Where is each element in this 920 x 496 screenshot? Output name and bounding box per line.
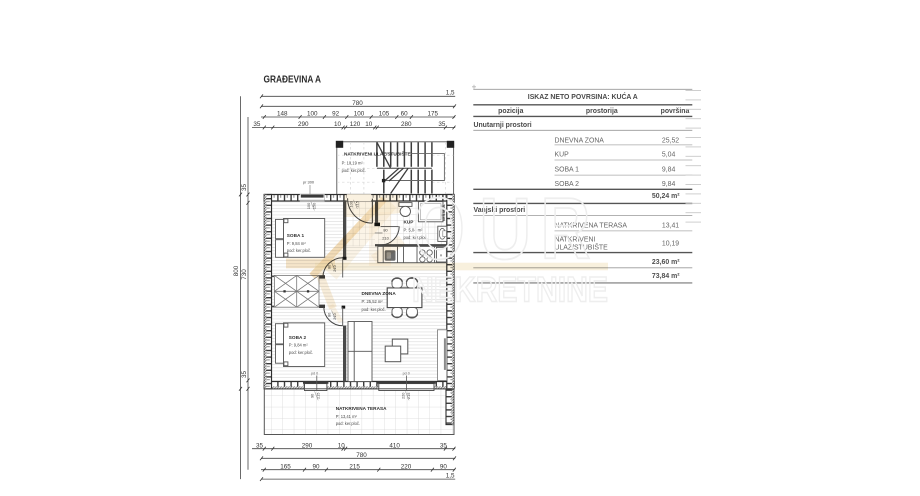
svg-text:pr 300: pr 300 bbox=[303, 180, 315, 185]
svg-text:NATKRIVENA TERASA: NATKRIVENA TERASA bbox=[336, 406, 387, 411]
svg-text:35: 35 bbox=[253, 121, 261, 128]
svg-text:10: 10 bbox=[365, 121, 373, 128]
svg-text:35: 35 bbox=[241, 184, 248, 192]
svg-text:90: 90 bbox=[312, 463, 320, 470]
svg-text:35: 35 bbox=[440, 442, 448, 449]
svg-text:780: 780 bbox=[352, 100, 363, 107]
svg-text:površina: površina bbox=[661, 108, 690, 115]
svg-text:165: 165 bbox=[280, 463, 291, 470]
svg-text:100: 100 bbox=[307, 111, 318, 118]
svg-text:10: 10 bbox=[338, 442, 346, 449]
svg-text:P: 9,84 m²: P: 9,84 m² bbox=[289, 343, 309, 348]
svg-text:5,04: 5,04 bbox=[662, 151, 676, 158]
svg-text:800: 800 bbox=[233, 265, 240, 276]
svg-text:pd 0: pd 0 bbox=[403, 372, 410, 376]
svg-text:SOBA 1: SOBA 1 bbox=[555, 166, 580, 173]
svg-text:290: 290 bbox=[302, 442, 313, 449]
svg-text:410: 410 bbox=[389, 442, 400, 449]
svg-text:P: 9,84 m²: P: 9,84 m² bbox=[287, 241, 307, 246]
svg-text:780: 780 bbox=[356, 452, 367, 459]
svg-text:120: 120 bbox=[350, 121, 361, 128]
svg-text:290: 290 bbox=[298, 121, 309, 128]
svg-text:730: 730 bbox=[241, 269, 248, 280]
svg-text:9,84: 9,84 bbox=[662, 166, 676, 173]
svg-text:O: O bbox=[413, 181, 465, 278]
svg-text:175: 175 bbox=[427, 111, 438, 118]
svg-text:13,41: 13,41 bbox=[662, 222, 679, 229]
svg-text:105: 105 bbox=[379, 111, 390, 118]
svg-text:100: 100 bbox=[306, 202, 311, 209]
svg-text:prostorija: prostorija bbox=[586, 108, 618, 115]
svg-text:10,19: 10,19 bbox=[662, 241, 679, 248]
svg-text:9,84: 9,84 bbox=[662, 181, 676, 188]
svg-text:U: U bbox=[479, 181, 531, 278]
svg-text:60: 60 bbox=[401, 111, 409, 118]
svg-text:92: 92 bbox=[332, 111, 340, 118]
svg-text:P: 25,52 m²: P: 25,52 m² bbox=[362, 299, 384, 304]
svg-text:35: 35 bbox=[241, 371, 248, 379]
svg-text:23,60 m²: 23,60 m² bbox=[652, 259, 680, 266]
svg-text:NATKRIVENI ULAZ/STUBIŠTE: NATKRIVENI ULAZ/STUBIŠTE bbox=[344, 150, 411, 157]
svg-text:100: 100 bbox=[354, 111, 365, 118]
svg-text:pozicija: pozicija bbox=[498, 108, 523, 115]
svg-text:SOBA 1: SOBA 1 bbox=[287, 233, 305, 238]
svg-text:pod: ker.ploč.: pod: ker.ploč. bbox=[342, 168, 366, 173]
svg-text:DNEVNA ZONA: DNEVNA ZONA bbox=[555, 137, 605, 144]
svg-text:pod: ker.ploč.: pod: ker.ploč. bbox=[289, 350, 313, 355]
svg-text:280: 280 bbox=[401, 121, 412, 128]
svg-text:220: 220 bbox=[400, 392, 405, 399]
svg-text:220: 220 bbox=[401, 463, 412, 470]
svg-text:pod: ker.ploč.: pod: ker.ploč. bbox=[287, 248, 311, 253]
svg-text:25,52: 25,52 bbox=[662, 137, 679, 144]
svg-text:215: 215 bbox=[349, 463, 360, 470]
svg-text:NEKRETNINE: NEKRETNINE bbox=[412, 271, 608, 310]
svg-text:35: 35 bbox=[438, 121, 446, 128]
svg-text:P: 10,19 m²: P: 10,19 m² bbox=[342, 161, 364, 166]
svg-text:R: R bbox=[541, 181, 591, 278]
svg-text:73,84 m²: 73,84 m² bbox=[652, 273, 680, 280]
svg-text:P: 13,41 m²: P: 13,41 m² bbox=[336, 414, 358, 419]
svg-text:Unutarnji prostori: Unutarnji prostori bbox=[474, 122, 532, 129]
svg-text:pod: ker.ploč.: pod: ker.ploč. bbox=[362, 307, 386, 312]
svg-text:150: 150 bbox=[311, 202, 316, 209]
svg-text:50,24 m²: 50,24 m² bbox=[652, 193, 680, 200]
svg-text:90: 90 bbox=[440, 463, 448, 470]
svg-text:10: 10 bbox=[334, 121, 342, 128]
svg-text:148: 148 bbox=[277, 111, 288, 118]
svg-text:KUP: KUP bbox=[555, 151, 570, 158]
svg-text:DNEVNA ZONA: DNEVNA ZONA bbox=[362, 291, 397, 296]
svg-text:GRAĐEVINA A: GRAĐEVINA A bbox=[264, 75, 322, 86]
svg-text:pod: ker.ploč.: pod: ker.ploč. bbox=[336, 421, 360, 426]
svg-text:pd 0: pd 0 bbox=[311, 372, 318, 376]
svg-text:35: 35 bbox=[256, 442, 264, 449]
svg-text:1,5: 1,5 bbox=[446, 472, 455, 479]
svg-text:ISKAZ NETO POVRSINA: KUĆA A: ISKAZ NETO POVRSINA: KUĆA A bbox=[528, 92, 638, 101]
svg-text:SOBA 2: SOBA 2 bbox=[289, 335, 307, 340]
svg-text:1,5: 1,5 bbox=[446, 90, 455, 97]
